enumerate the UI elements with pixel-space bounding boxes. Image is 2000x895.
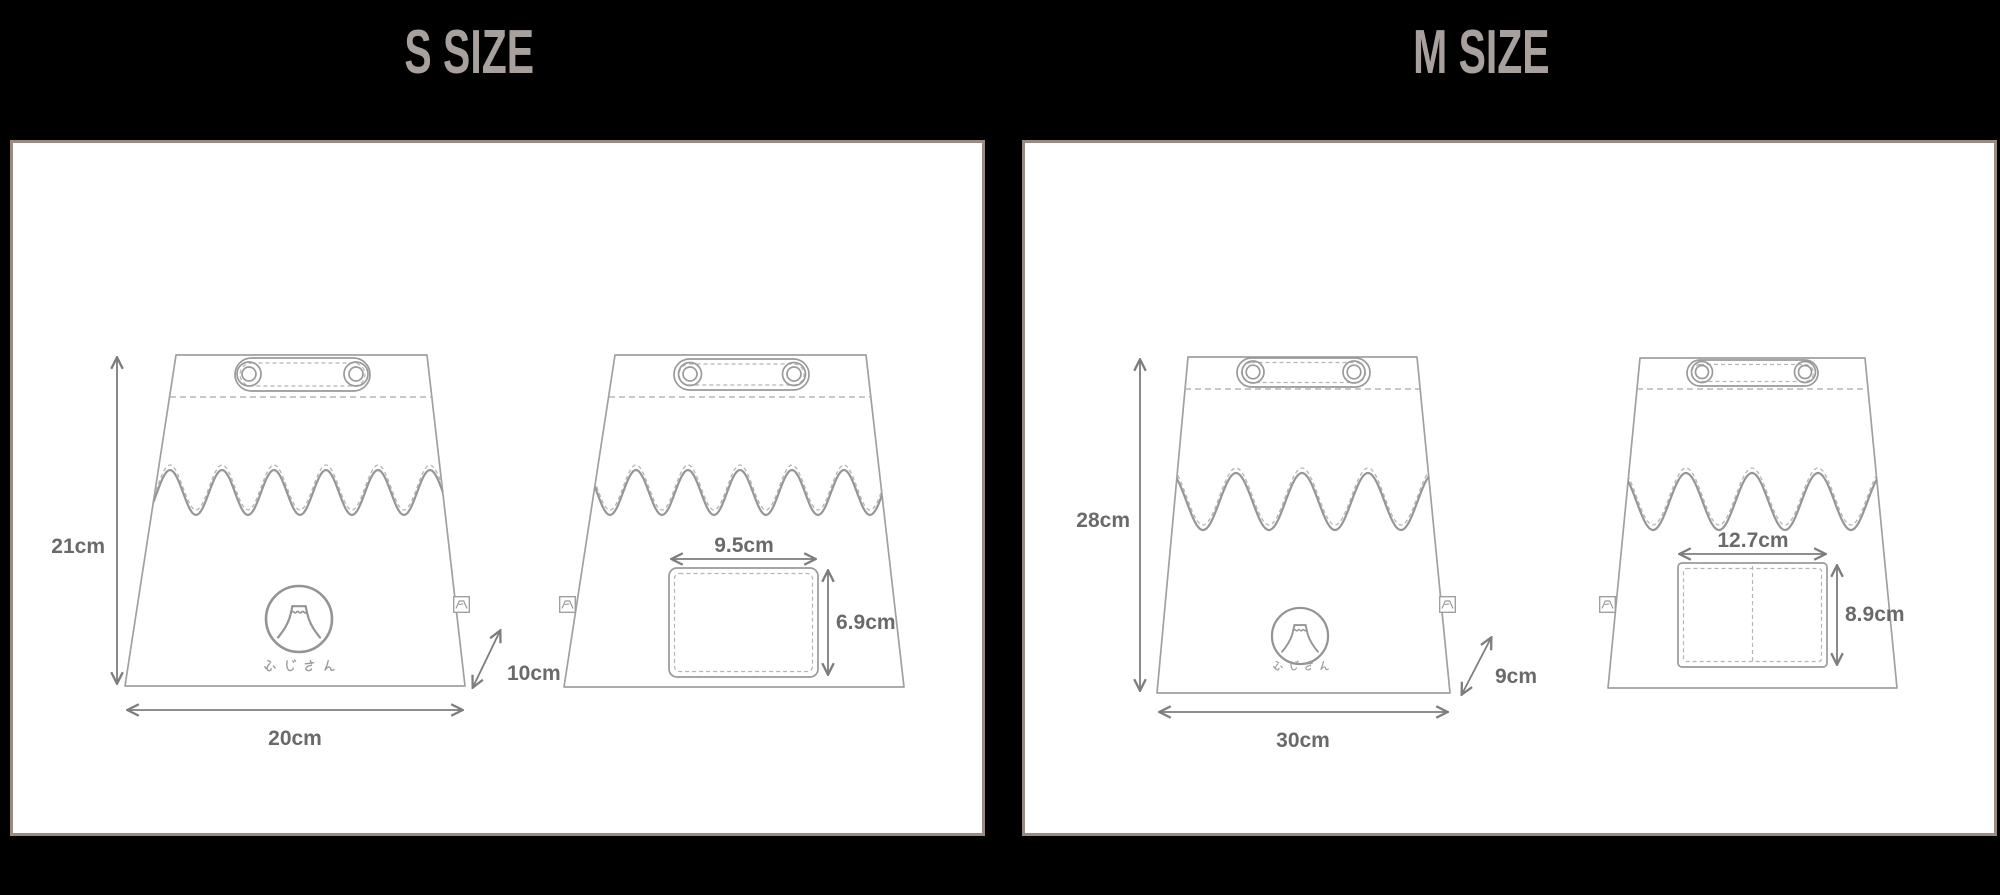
side-tab-fuji-icon	[560, 597, 576, 613]
m-size-diagram: 28cm 30cm 9cm 12.7cm 8.9cm	[1025, 143, 1994, 833]
s-width-dimension-label: 20cm	[268, 727, 322, 750]
s-size-title-text: S SIZE	[405, 22, 535, 84]
s-depth-dimension-arrow	[473, 631, 500, 687]
m-pocket-width-dimension-label: 12.7cm	[1717, 529, 1788, 552]
screenshot-stage: S SIZE M SIZE	[0, 0, 2000, 895]
m-width-dimension-label: 30cm	[1276, 729, 1330, 752]
side-tab-fuji-icon	[1600, 597, 1616, 613]
s-front-bag	[118, 355, 482, 686]
m-back-bag	[1554, 358, 1897, 688]
s-size-title: S SIZE	[10, 22, 985, 84]
s-pocket-height-dimension-label: 6.9cm	[836, 611, 896, 634]
m-depth-dimension-arrow	[1462, 638, 1491, 694]
s-depth-dimension-label: 10cm	[507, 662, 561, 685]
s-back-bag-outline	[564, 355, 904, 687]
s-pocket-width-dimension-label: 9.5cm	[714, 534, 774, 557]
m-size-title-text: M SIZE	[1413, 22, 1549, 84]
s-size-panel: 21cm 20cm 10cm 9.5cm 6.9cm	[10, 140, 985, 836]
m-pocket-height-dimension-label: 8.9cm	[1845, 603, 1905, 626]
side-tab-fuji-icon	[1440, 597, 1456, 613]
m-size-panel: 28cm 30cm 9cm 12.7cm 8.9cm	[1022, 140, 1997, 836]
s-front-bag-outline	[125, 355, 465, 686]
m-depth-dimension-label: 9cm	[1495, 665, 1537, 688]
m-size-title: M SIZE	[1022, 22, 1997, 84]
s-size-diagram: 21cm 20cm 10cm 9.5cm 6.9cm	[13, 143, 982, 833]
m-front-bag	[1104, 357, 1455, 693]
s-back-bag	[532, 355, 904, 687]
s-height-dimension-label: 21cm	[51, 535, 105, 558]
m-height-dimension-label: 28cm	[1076, 509, 1130, 532]
side-tab-fuji-icon	[454, 597, 470, 613]
